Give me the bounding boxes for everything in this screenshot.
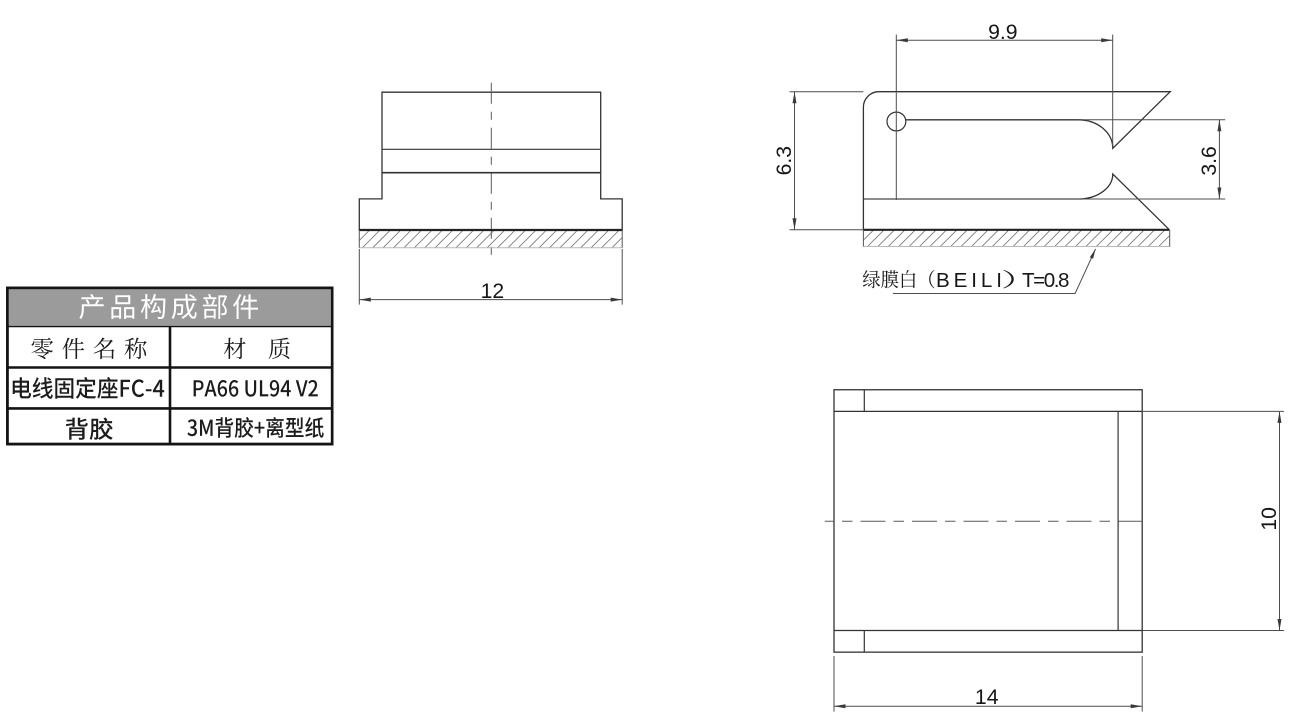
svg-text:3.6: 3.6 bbox=[1198, 146, 1221, 175]
svg-text:12: 12 bbox=[481, 280, 505, 303]
svg-text:14: 14 bbox=[975, 686, 999, 709]
svg-text:6.3: 6.3 bbox=[773, 146, 796, 175]
svg-text:BEILI: BEILI bbox=[936, 269, 1002, 292]
svg-text:T=0.8: T=0.8 bbox=[1022, 269, 1070, 292]
svg-text:9.9: 9.9 bbox=[988, 21, 1017, 44]
svg-text:10: 10 bbox=[1258, 507, 1281, 531]
